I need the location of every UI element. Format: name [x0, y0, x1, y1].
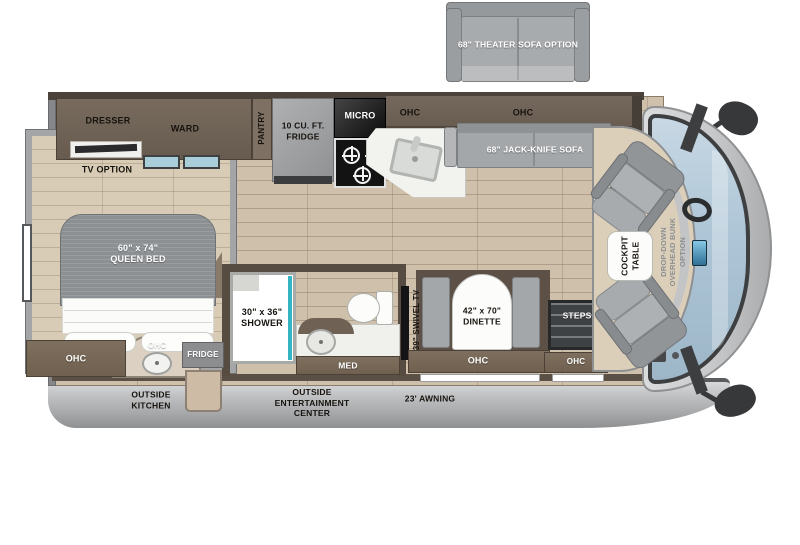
fridge-label: 10 CU. FT. FRIDGE	[282, 120, 325, 141]
bedroom-ohc-label: OHC	[66, 353, 87, 364]
med-cabinet-label: MED	[338, 361, 358, 372]
burner-icon	[343, 147, 360, 164]
entertainment-center-label: OUTSIDE ENTERTAINMENT CENTER	[275, 387, 350, 419]
bedroom-window	[22, 224, 32, 302]
theater-sofa-front	[462, 66, 574, 81]
toilet-bowl	[347, 293, 380, 323]
bath-wall-top	[222, 264, 406, 272]
fridge-base	[274, 176, 332, 184]
pantry-label: PANTRY	[257, 111, 267, 144]
blanket-fold	[64, 310, 212, 311]
micro-label: MICRO	[345, 110, 376, 121]
burner-icon	[354, 167, 371, 184]
outside-sink-drain	[155, 361, 159, 365]
dash-screen	[692, 240, 707, 266]
outside-kitchen-ohc-label: OHC	[148, 341, 166, 351]
awning-label: 23' AWNING	[405, 394, 455, 405]
entry-ohc-label: OHC	[567, 357, 585, 367]
ohc-label-2: OHC	[513, 107, 534, 118]
dash-knob-bottom	[672, 352, 679, 359]
dinette-label: 42" x 70" DINETTE	[463, 305, 501, 326]
cockpit-table-label: COCKPIT TABLE	[619, 236, 640, 276]
bed-blanket	[62, 298, 214, 334]
bunk-option-label: DROP-DOWN OVERHEAD BUNK OPTION	[659, 218, 687, 287]
dinette-bench-right	[512, 277, 540, 348]
ward-label: WARD	[171, 123, 199, 134]
jackknife-sofa-label: 68" JACK-KNIFE SOFA	[487, 145, 584, 156]
vanity-sink-drain	[319, 340, 323, 344]
dinette-bench-left	[422, 277, 450, 348]
dresser-label: DRESSER	[86, 115, 131, 126]
outside-fridge-door	[185, 370, 222, 412]
dinette-window	[420, 374, 540, 382]
queen-bed-label: 60" x 74" QUEEN BED	[110, 243, 165, 266]
dinette-ohc-label: OHC	[468, 355, 489, 366]
shower-glass	[288, 276, 292, 360]
outside-fridge-label: FRIDGE	[187, 350, 218, 360]
windshield-highlight	[712, 150, 728, 350]
entry-window	[552, 374, 604, 382]
shower-label: 30" x 36" SHOWER	[241, 307, 283, 330]
swivel-tv-label: 39" SWIVEL TV	[412, 290, 422, 350]
jackknife-sofa-arm-left	[444, 127, 457, 167]
swivel-tv	[401, 286, 409, 360]
tv-option-label: TV OPTION	[82, 164, 132, 175]
blanket-fold	[64, 322, 212, 323]
theater-sofa-label: 68" THEATER SOFA OPTION	[458, 40, 578, 51]
ohc-label-1: OHC	[400, 107, 421, 118]
entry-steps-label: STEPS	[563, 311, 592, 322]
outside-kitchen-label: OUTSIDE KITCHEN	[131, 389, 170, 410]
window-seat-1	[143, 155, 180, 169]
window-seat-2	[183, 155, 220, 169]
sink-drain	[412, 156, 418, 162]
shower-corner-wall	[233, 275, 259, 291]
rv-floorplan: 68" THEATER SOFA OPTION 60" x 74" QUEEN …	[0, 0, 800, 545]
jackknife-sofa-backrest	[458, 124, 610, 133]
